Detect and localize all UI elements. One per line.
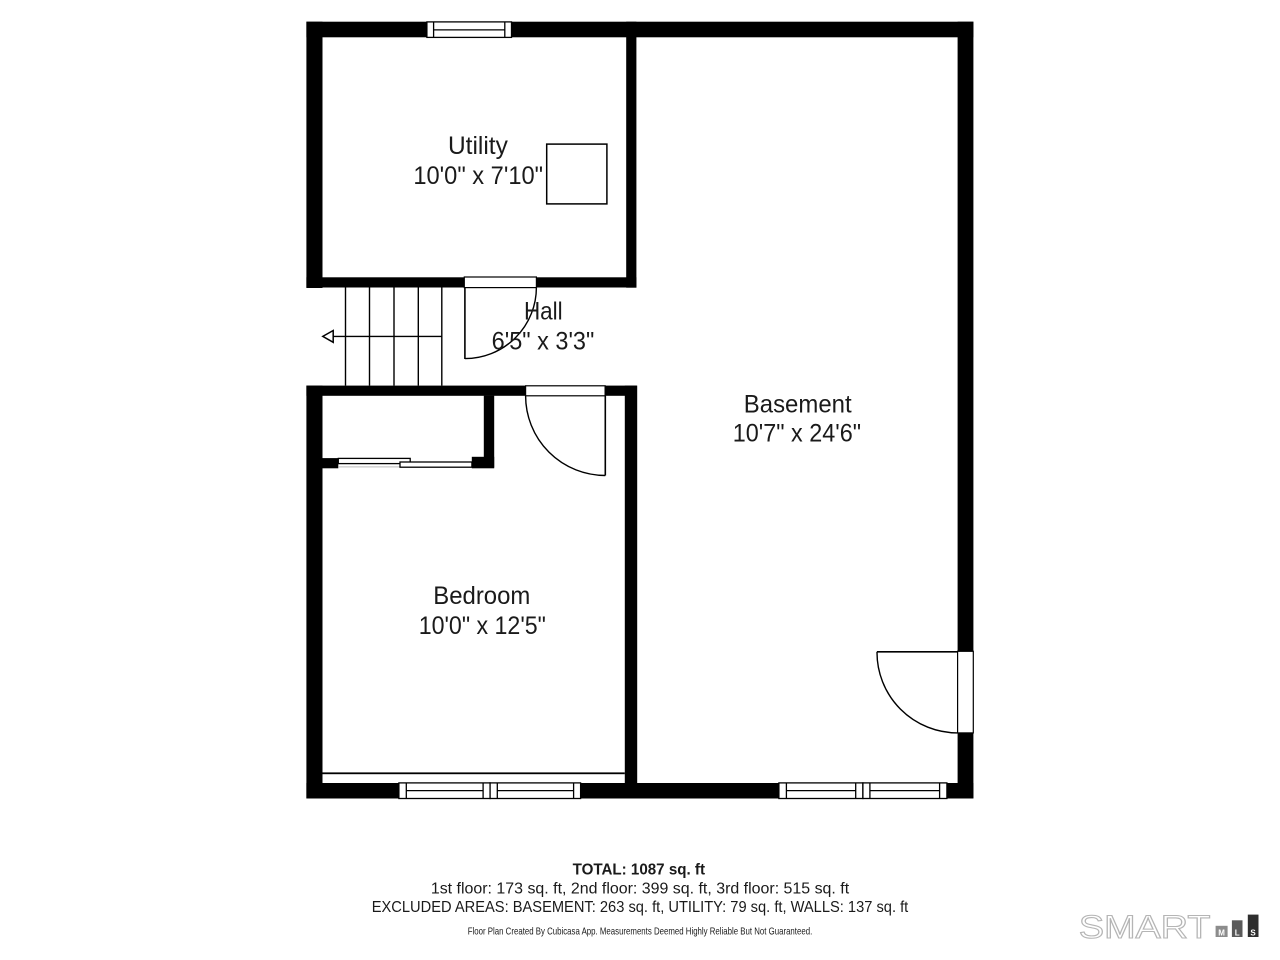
svg-text:SMART: SMART	[1079, 909, 1211, 945]
svg-text:10'0" x 7'10": 10'0" x 7'10"	[413, 162, 543, 190]
svg-text:Floor Plan Created By Cubicasa: Floor Plan Created By Cubicasa App. Meas…	[468, 926, 813, 938]
svg-text:M: M	[1218, 928, 1225, 937]
svg-text:Utility: Utility	[448, 132, 508, 160]
svg-text:10'0" x 12'5": 10'0" x 12'5"	[419, 612, 546, 640]
svg-text:Hall: Hall	[524, 298, 563, 326]
svg-text:Bedroom: Bedroom	[433, 582, 530, 610]
svg-text:L: L	[1235, 928, 1240, 937]
svg-text:10'7" x 24'6": 10'7" x 24'6"	[733, 420, 861, 448]
svg-text:S: S	[1250, 928, 1256, 937]
svg-text:EXCLUDED AREAS: BASEMENT: 263: EXCLUDED AREAS: BASEMENT: 263 sq. ft, UT…	[372, 899, 909, 916]
svg-text:1st floor: 173 sq. ft, 2nd flo: 1st floor: 173 sq. ft, 2nd floor: 399 sq…	[431, 880, 850, 897]
svg-text:TOTAL: 1087 sq. ft: TOTAL: 1087 sq. ft	[573, 862, 706, 879]
svg-text:6'5" x 3'3": 6'5" x 3'3"	[492, 328, 595, 356]
svg-text:Basement: Basement	[744, 390, 852, 418]
